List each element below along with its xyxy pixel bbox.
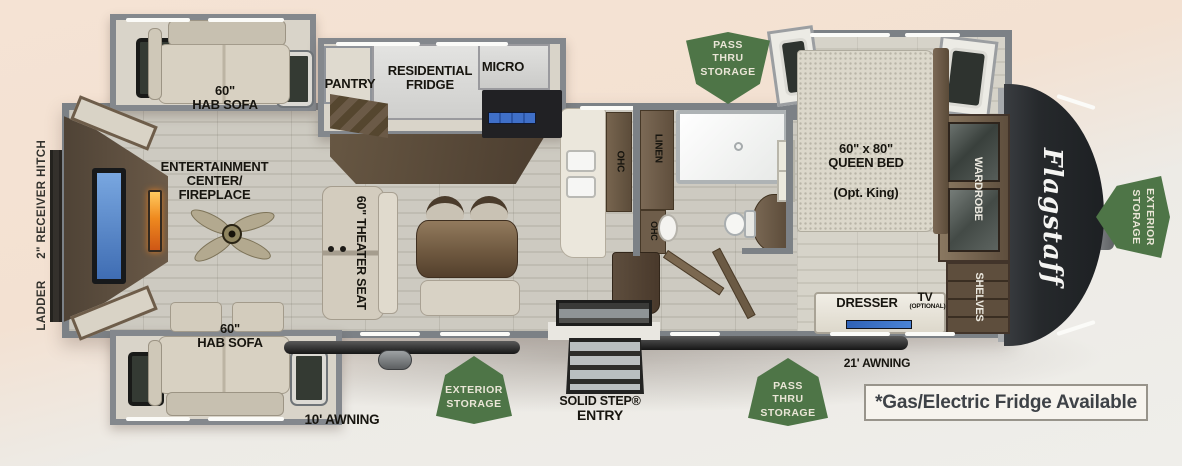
label-entry: ENTRY — [540, 408, 660, 423]
hall-sink — [658, 214, 678, 242]
wall-trim — [208, 18, 284, 22]
wall-trim — [670, 332, 720, 336]
cooktop-burners — [488, 112, 536, 124]
toilet-tank — [744, 210, 756, 238]
fridge-footnote: *Gas/Electric Fridge Available — [864, 384, 1148, 421]
wall-trim — [905, 332, 955, 336]
cupholder — [340, 246, 346, 252]
wall-trim — [436, 42, 508, 46]
label-dresser: DRESSER — [822, 296, 912, 310]
label-tv-optional: (OPTIONAL) — [900, 303, 955, 310]
shower — [676, 110, 788, 184]
partition-wall — [786, 106, 793, 254]
wall-trim — [905, 33, 960, 37]
label-queen-bed: 60" x 80" QUEEN BED — [806, 142, 926, 170]
label-theater-seat: 60" THEATER SEAT — [353, 183, 367, 323]
awning-front-bar — [630, 336, 908, 350]
partition-wall — [633, 106, 640, 256]
kitchen-counter — [330, 134, 546, 184]
wall-trim — [360, 332, 420, 336]
label-fridge: RESIDENTIAL FRIDGE — [374, 64, 486, 92]
sofa-bottom-back — [166, 392, 284, 416]
window — [943, 47, 988, 109]
badge-label: EXTERIOR STORAGE — [1128, 188, 1155, 246]
entry-step-well — [556, 300, 652, 326]
label-opt-king: (Opt. King) — [806, 186, 926, 200]
ladder-hitch-label: LADDER 2" RECEIVER HITCH — [36, 95, 48, 375]
toilet — [724, 212, 746, 236]
theater-seat-back — [378, 192, 398, 314]
partition-wall — [742, 248, 793, 254]
label-linen: LINEN — [652, 113, 663, 183]
label-micro: MICRO — [472, 60, 534, 74]
wall-trim — [336, 42, 420, 46]
stabilizer-jack — [378, 350, 412, 370]
wall-trim — [830, 332, 890, 336]
badge-label: PASS THRU STORAGE — [760, 380, 815, 421]
cupholder — [328, 246, 334, 252]
dinette-table — [416, 220, 518, 278]
floorplan-canvas: LADDER 2" RECEIVER HITCH Flagstaff — [0, 0, 1182, 466]
wall-trim — [126, 18, 190, 22]
badge-label: EXTERIOR STORAGE — [445, 384, 503, 411]
label-entertainment: ENTERTAINMENT CENTER/ FIREPLACE — [152, 160, 277, 202]
brand-logo: Flagstaff — [1037, 117, 1067, 317]
label-awning-rear: 10' AWNING — [277, 413, 407, 428]
sofa-top-armrest — [148, 28, 162, 100]
wall-trim — [126, 417, 190, 421]
window — [292, 352, 326, 404]
shower-drain — [734, 142, 743, 151]
entry-steps — [566, 338, 644, 394]
rear-ladder — [50, 150, 62, 322]
sink-basin — [566, 150, 596, 172]
label-pantry: PANTRY — [318, 77, 382, 91]
sink-basin — [566, 176, 596, 198]
sofa-top-back — [168, 20, 286, 46]
label-hab-sofa-top: 60" HAB SOFA — [170, 84, 280, 112]
label-hab-sofa-bottom: 60" HAB SOFA — [175, 322, 285, 350]
bath-vanity — [752, 194, 788, 252]
wall-trim — [208, 417, 284, 421]
wall-trim — [580, 106, 640, 110]
label-ohc-island: OHC — [614, 131, 625, 191]
label-shelves: SHELVES — [972, 252, 984, 342]
label-ohc-hall: OHC — [648, 211, 658, 251]
label-tv: TV — [900, 291, 950, 304]
wall-trim — [810, 33, 890, 37]
fridge-footnote-text: *Gas/Electric Fridge Available — [875, 392, 1137, 414]
dinette-bench — [420, 280, 520, 316]
label-awning-front: 21' AWNING — [817, 357, 937, 370]
sofa-bottom-armrest — [148, 340, 162, 406]
ceiling-fan-icon — [186, 196, 278, 270]
badge-pass-thru-storage-top: PASS THRU STORAGE — [686, 32, 770, 104]
wall-trim — [440, 332, 510, 336]
bed-headboard — [933, 48, 949, 234]
dresser-tv-strip — [846, 320, 912, 329]
badge-label: PASS THRU STORAGE — [700, 39, 755, 80]
tv-screen — [92, 168, 126, 284]
label-wardrobe: WARDROBE — [971, 134, 983, 244]
